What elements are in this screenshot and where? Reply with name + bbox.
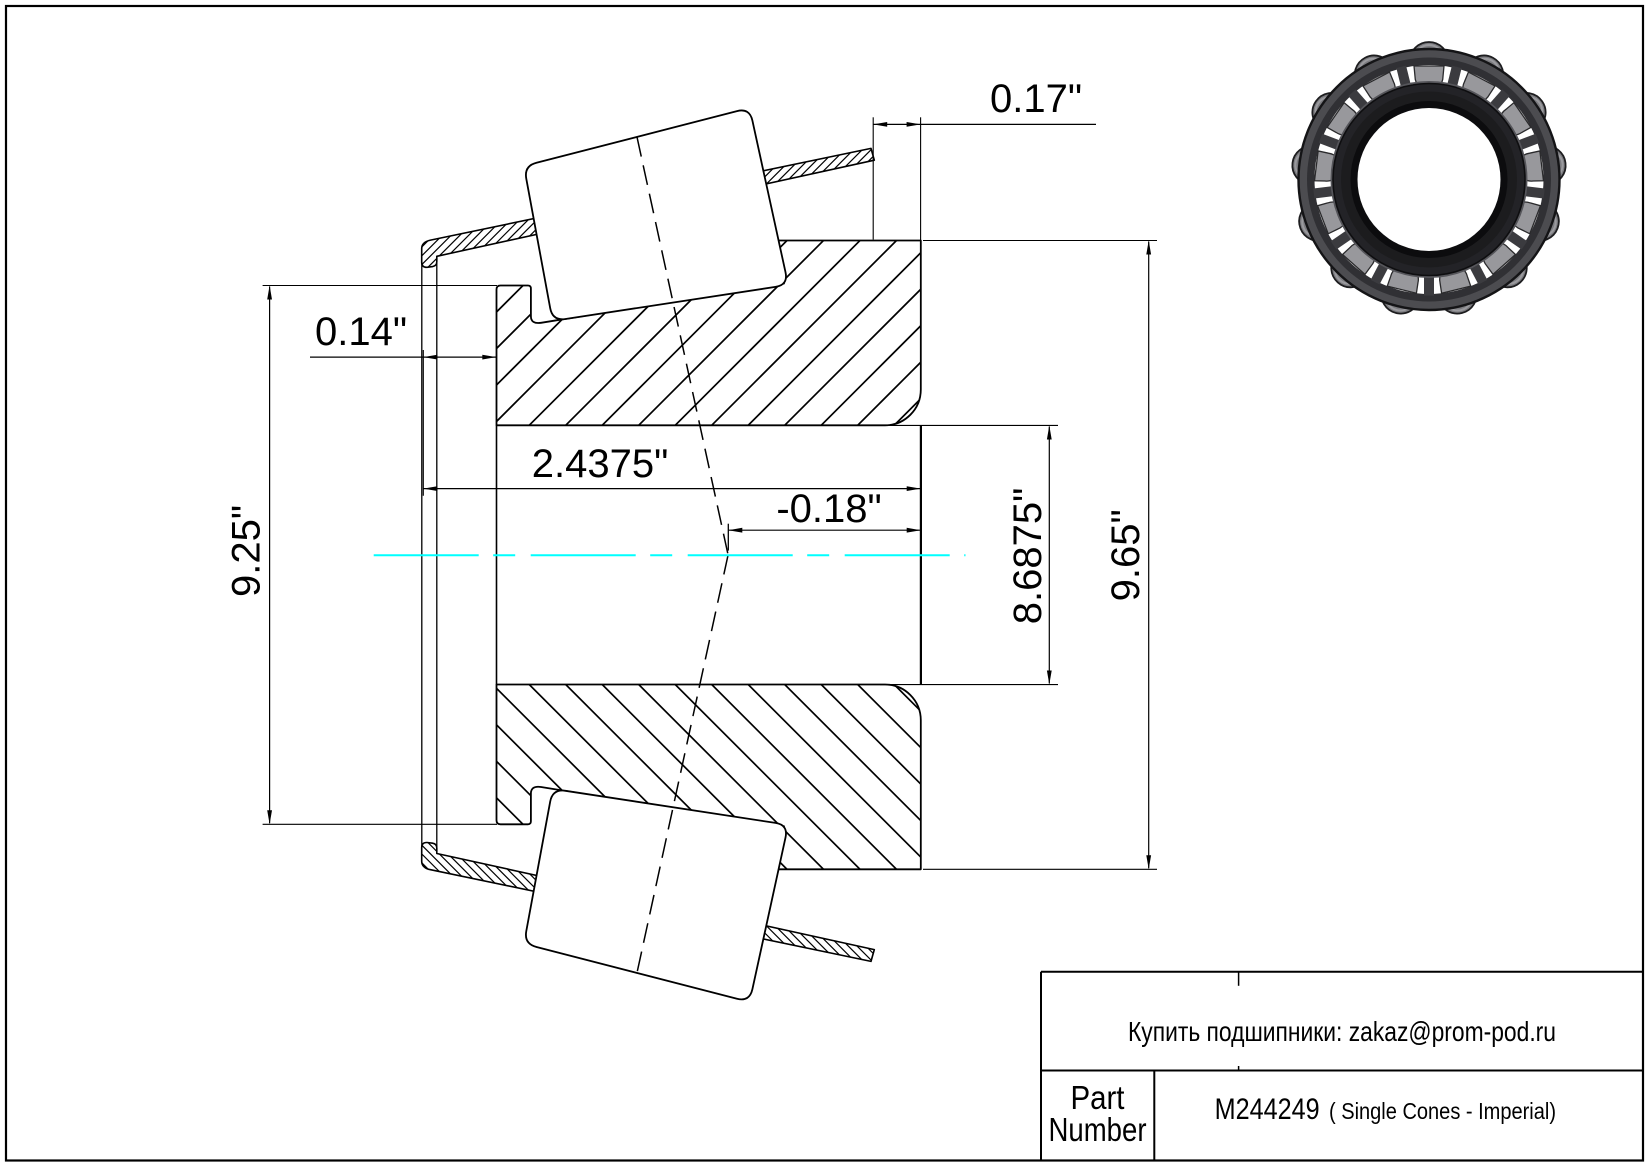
svg-text:0.14": 0.14": [315, 310, 407, 354]
svg-text:2.4375": 2.4375": [532, 442, 669, 486]
svg-text:9.25": 9.25": [225, 505, 269, 597]
svg-text:Купить подшипники: zakaz@prom-: Купить подшипники: zakaz@prom-pod.ru: [1128, 1016, 1556, 1047]
svg-text:9.65": 9.65": [1104, 509, 1148, 601]
svg-text:-0.18": -0.18": [776, 487, 881, 531]
svg-text:( Single Cones - Imperial): ( Single Cones - Imperial): [1329, 1098, 1556, 1124]
svg-text:Number: Number: [1049, 1111, 1147, 1148]
svg-text:M244249: M244249: [1215, 1093, 1320, 1126]
svg-text:8.6875": 8.6875": [1006, 488, 1050, 625]
svg-text:0.17": 0.17": [990, 77, 1082, 121]
